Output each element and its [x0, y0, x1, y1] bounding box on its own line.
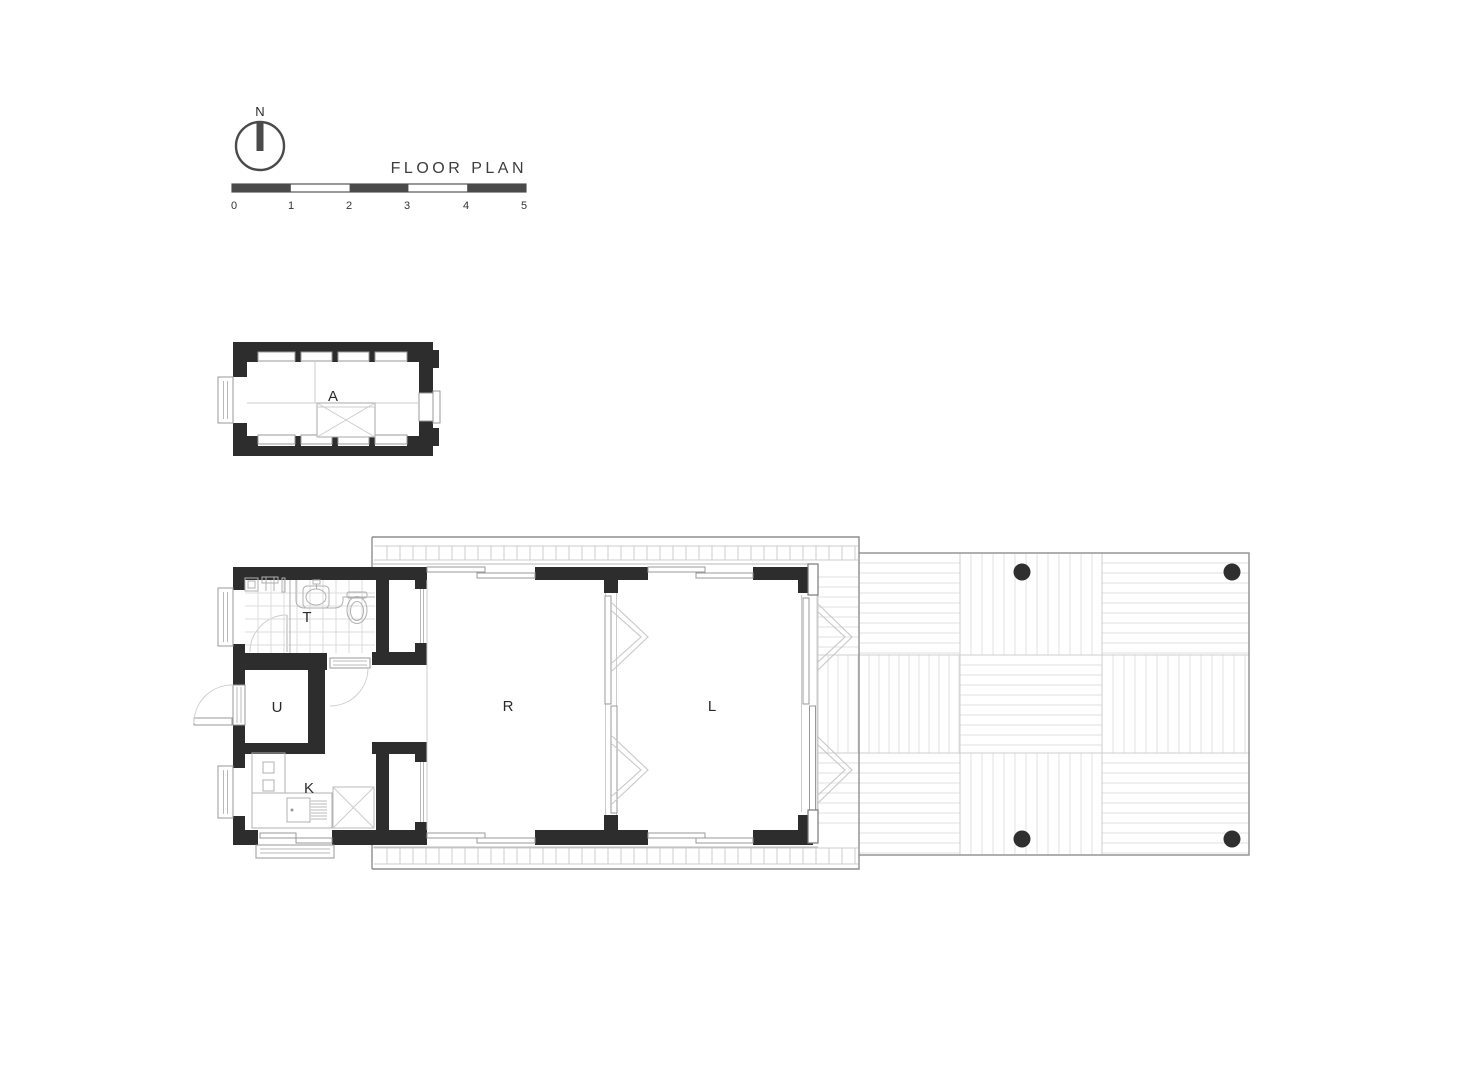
bay-window [218, 588, 233, 646]
floor-plan-drawing: N FLOOR PLAN 0 1 2 3 4 5 [0, 0, 1476, 1092]
room-label-kitchen: K [304, 780, 314, 797]
kitchen-hatch-box [333, 787, 374, 828]
walkway-planks [387, 848, 855, 864]
shower-door [250, 615, 287, 652]
bathroom-door [330, 658, 370, 706]
walkway-planks [387, 546, 855, 560]
deck-planks [859, 763, 960, 853]
deck-planks [971, 753, 1092, 855]
deck-column [1224, 831, 1241, 848]
drainboard-icon [311, 801, 327, 819]
north-arrow-icon: N [236, 104, 284, 170]
deck-column [1014, 564, 1031, 581]
scale-tick-1: 1 [288, 200, 294, 212]
deck-planks [869, 655, 959, 753]
bay-window [256, 845, 334, 858]
scale-bar: 0 1 2 3 4 5 [231, 184, 527, 212]
doors [194, 603, 852, 804]
room-label-bathroom: T [302, 609, 311, 626]
folding-door-icon [817, 603, 852, 804]
scale-tick-4: 4 [463, 200, 469, 212]
deck-column [1014, 831, 1031, 848]
entry-door [194, 685, 245, 725]
bay-window [218, 766, 233, 818]
kitchen-sink-icon [287, 798, 310, 822]
north-label: N [255, 104, 264, 119]
deck-planks [828, 655, 858, 753]
room-label-living: L [708, 698, 716, 715]
deck-planks [859, 563, 960, 653]
deck [818, 553, 1249, 855]
deck-planks [960, 665, 1102, 745]
room-label-room: R [503, 698, 514, 715]
sink-icon [303, 580, 329, 608]
floor-plan-page: N FLOOR PLAN 0 1 2 3 4 5 [0, 0, 1476, 1092]
upper-floor-plan: A [218, 342, 440, 456]
room-label-attic: A [328, 388, 338, 405]
deck-column [1224, 564, 1241, 581]
house-walls [233, 567, 813, 845]
deck-planks [971, 553, 1092, 655]
drawing-title: FLOOR PLAN [391, 160, 527, 177]
deck-planks [818, 763, 859, 823]
deck-planks [818, 577, 859, 647]
attic-bay-window [218, 377, 233, 423]
deck-planks [1113, 655, 1245, 753]
attic-opening-hatch [317, 403, 375, 437]
scale-tick-0: 0 [231, 200, 237, 212]
scale-tick-2: 2 [346, 200, 352, 212]
scale-tick-3: 3 [404, 200, 410, 212]
room-label-utility: U [272, 699, 283, 716]
scale-tick-5: 5 [521, 200, 527, 212]
